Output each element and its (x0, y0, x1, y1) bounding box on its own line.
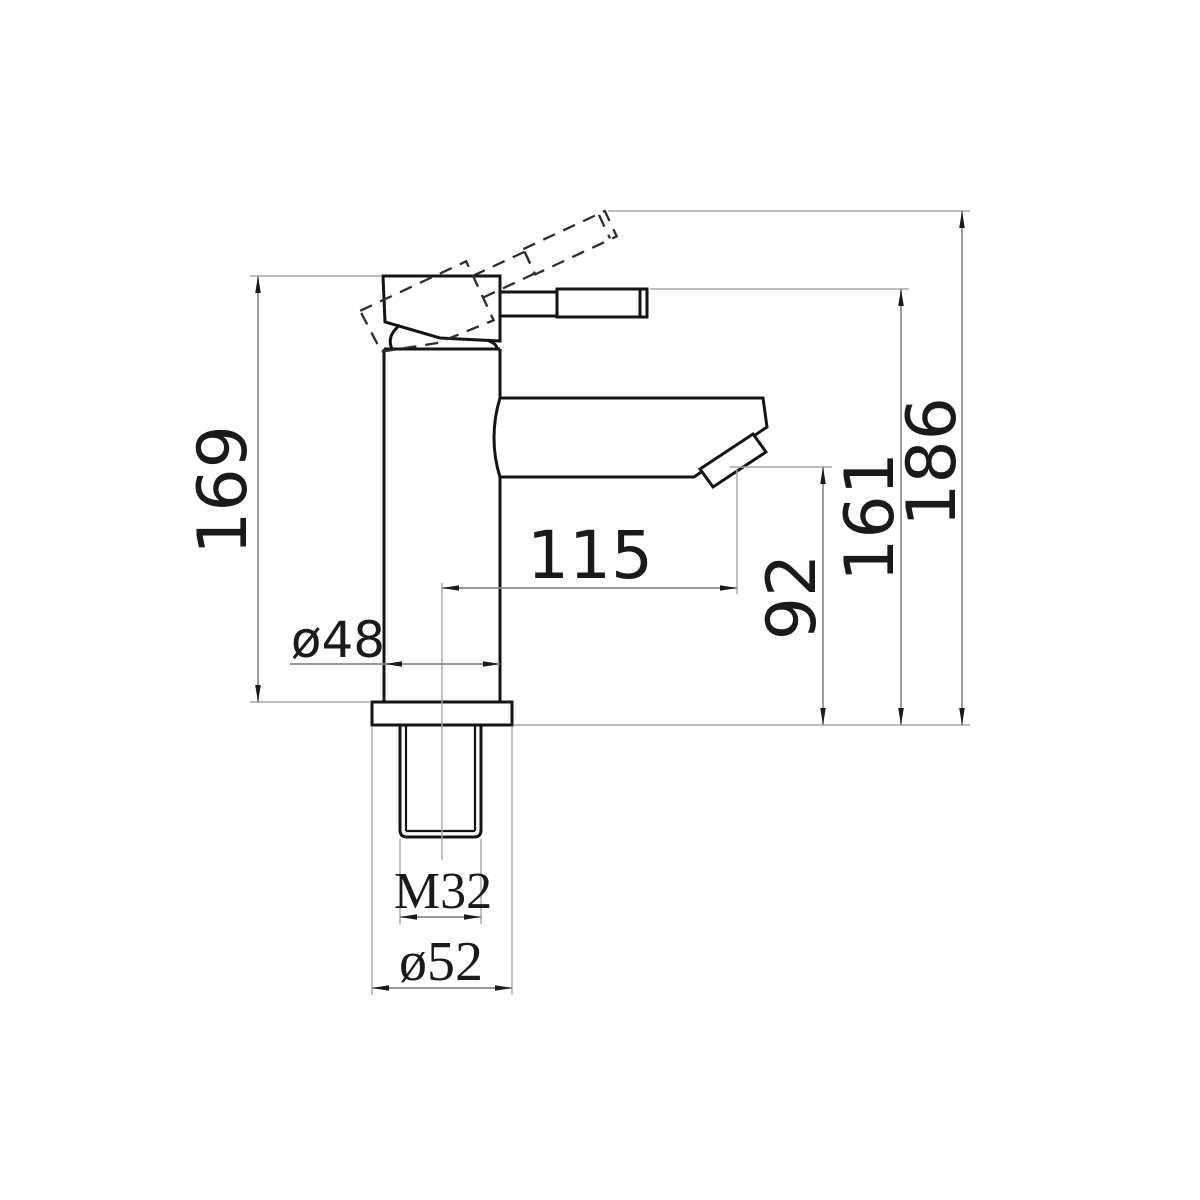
extension-lines (250, 211, 970, 995)
dim-body-diameter-label: ø48 (291, 611, 385, 669)
faucet-dimension-drawing: 169 115 ø48 92 161 186 M32 ø52 (0, 0, 1200, 1200)
dim-spout-reach-label: 115 (527, 517, 653, 594)
dim-arrow (255, 685, 261, 702)
dim-arrow (959, 708, 965, 725)
dim-body-height-label: 169 (184, 425, 263, 555)
dimension-labels: 169 115 ø48 92 161 186 M32 ø52 (184, 397, 972, 993)
dim-arrow (820, 467, 826, 484)
dim-arrow (483, 661, 500, 667)
faucet-lever-grip (557, 289, 647, 317)
dim-arrow (372, 985, 389, 991)
cartridge-dome-left-arc (390, 325, 400, 349)
faucet-handle-body (383, 276, 500, 341)
dim-arrow (820, 708, 826, 725)
dim-arrow (442, 585, 459, 591)
dim-outlet-height-label: 92 (753, 554, 832, 641)
dim-arrow (720, 585, 737, 591)
dim-arrow (495, 985, 512, 991)
faucet-threaded-shank (400, 725, 481, 837)
dim-arrow (898, 708, 904, 725)
dimension-lines (255, 211, 965, 991)
faucet-lever-rod (500, 292, 557, 316)
technical-drawing-sheet: 169 115 ø48 92 161 186 M32 ø52 (0, 0, 1200, 1200)
dim-arrow (959, 211, 965, 228)
dashed-lever-grip (523, 211, 616, 274)
dim-thread-label: M32 (394, 863, 492, 920)
dim-arrow (255, 276, 261, 293)
dim-base-diameter-label: ø52 (399, 931, 483, 993)
dim-arrow (385, 661, 402, 667)
dim-arrow (898, 289, 904, 306)
dim-max-height-label: 186 (893, 397, 972, 527)
